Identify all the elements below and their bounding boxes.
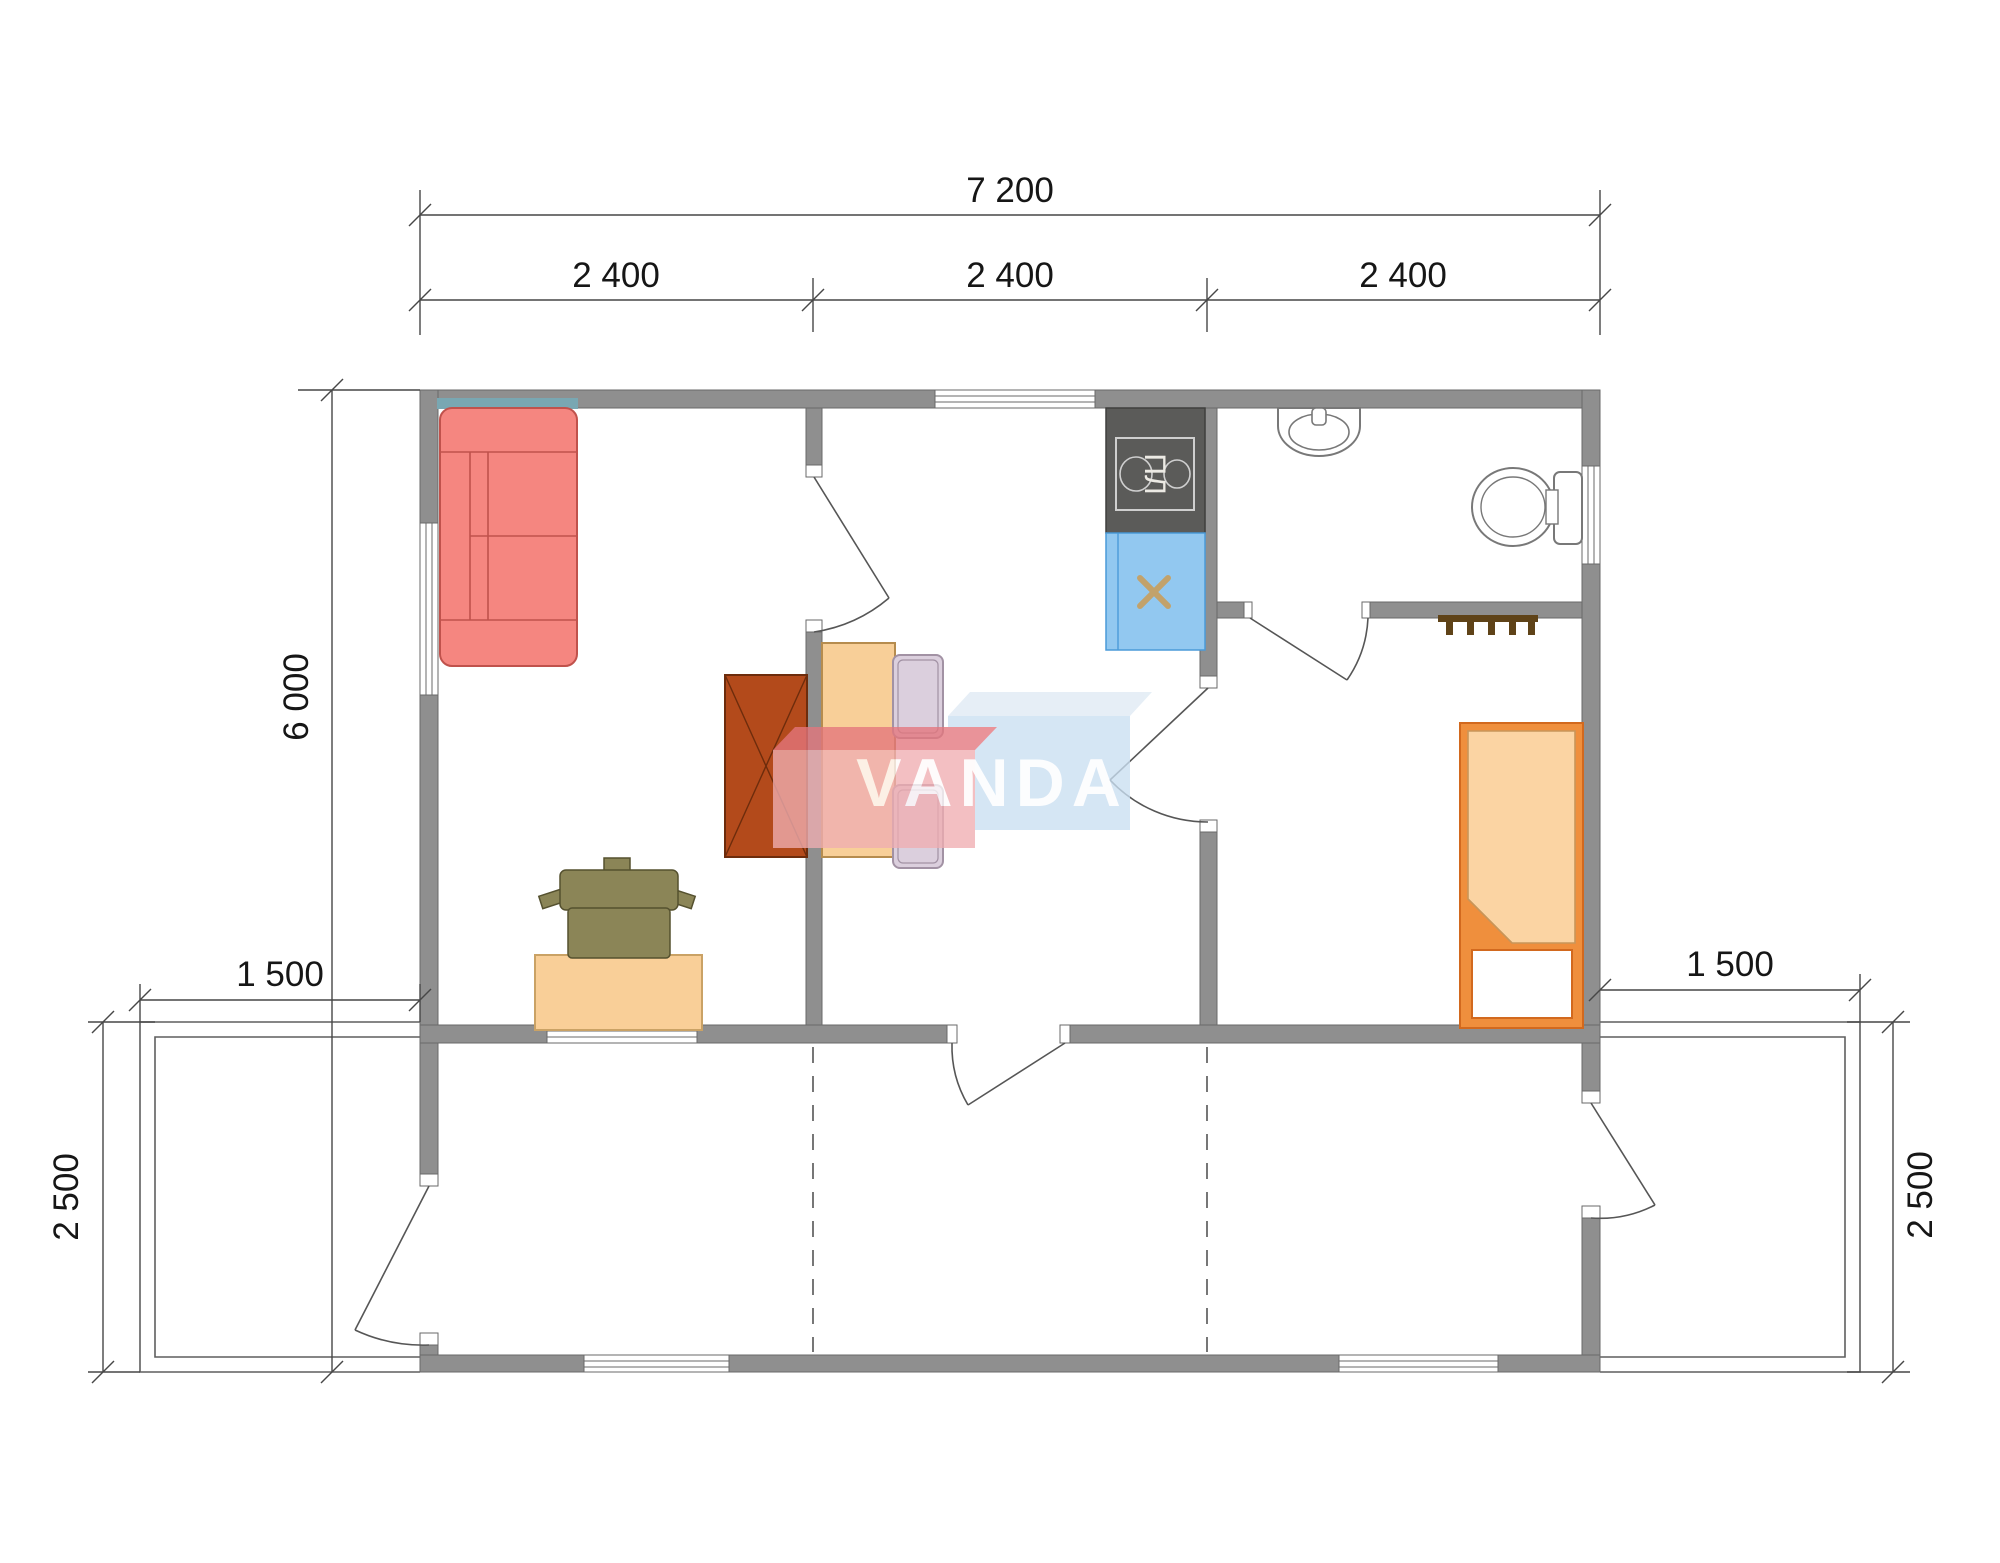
dim-label-module-1: 2 400 [572,256,660,295]
dim-label-right-deck: 1 500 [1686,945,1774,984]
dining-chair-1 [893,655,943,738]
sofa [437,398,578,666]
terrace-bottom-wall-c [1498,1355,1600,1372]
dim-label-overall-depth: 6 000 [277,653,316,741]
terrace-bottom-wall-b [729,1355,1339,1372]
right-wall-middle [1582,564,1600,1103]
interior-wall-1-upper [806,408,822,465]
stove: ПЛ [1106,408,1205,533]
dim-label-module-3: 2 400 [1359,256,1447,295]
floor-plan-page: ПЛ VANDA [0,0,2000,1563]
left-wall-upper [420,390,438,523]
left-wall-window [420,523,438,695]
dim-left-terrace-depth: 2 500 [47,1011,155,1383]
right-wall-upper [1582,390,1600,466]
dim-label-right-terrace-depth: 2 500 [1901,1151,1940,1239]
dim-label-overall-width: 7 200 [966,171,1054,210]
interior-wall-2-lower [1200,820,1217,1025]
top-wall-window [935,390,1095,408]
divider-wall-left [1217,602,1244,618]
bed-blanket [1468,731,1575,943]
right-deck-outer-edge [1600,1022,1860,1372]
kitchen-sink [1106,533,1205,650]
dim-overall-width: 7 200 [409,171,1611,335]
terrace-left-door [355,1174,438,1345]
watermark-blue-top [948,692,1152,716]
house-bottom-wall-a [420,1025,547,1043]
house-bottom-wall-b [697,1025,947,1043]
left-deck-inner-edge [155,1037,420,1357]
dim-label-left-terrace-depth: 2 500 [47,1153,86,1241]
terrace-right-door [1582,1091,1655,1218]
bathroom-sink [1278,408,1360,456]
bed-pillow [1472,950,1572,1018]
dim-right-terrace-depth: 2 500 [1847,1011,1940,1383]
coat-rack [1438,615,1538,635]
right-deck-inner-edge [1600,1037,1845,1357]
dim-right-deck: 1 500 [1589,945,1871,1022]
dim-label-module-2: 2 400 [966,256,1054,295]
stove-label: ПЛ [1138,453,1171,494]
faucet-icon [1312,408,1326,425]
dim-overall-depth: 6 000 [277,379,420,1383]
terrace-window-left [584,1355,729,1372]
entrance-door [947,1025,1070,1105]
bathroom-window [1582,466,1600,564]
bathroom-door [1244,602,1370,680]
floor-plan-drawing: ПЛ VANDA [0,0,2000,1563]
right-wall-lower [1582,1218,1600,1355]
desk [535,955,702,1030]
dim-label-left-deck: 1 500 [236,955,324,994]
watermark-text: VANDA [856,745,1128,821]
terrace-bottom-wall-a [420,1355,584,1372]
left-deck-outer-edge [140,1022,420,1372]
terrace-window-right [1339,1355,1498,1372]
dim-modules: 2 400 2 400 2 400 [409,256,1611,332]
living-room-door [806,465,889,632]
office-chair [539,858,695,958]
bed [1460,723,1583,1028]
left-wall-middle [420,695,438,1186]
dim-left-deck: 1 500 [129,955,431,1022]
terrace-deck-outline [140,1022,1860,1372]
toilet [1472,468,1582,546]
